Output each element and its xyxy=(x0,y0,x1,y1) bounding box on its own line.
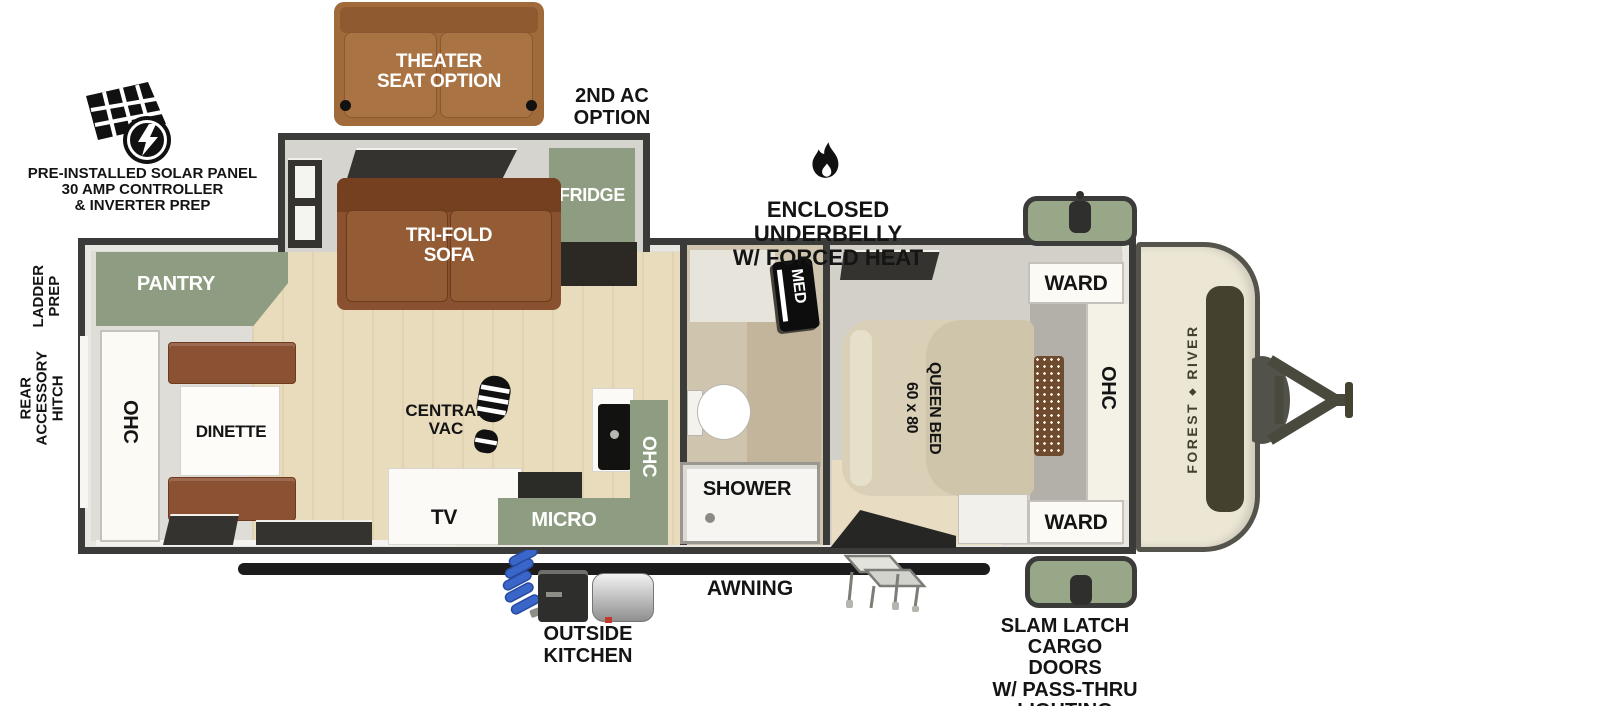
theater-seat-back xyxy=(340,7,538,33)
bath-counter xyxy=(747,322,821,467)
fridge: FRIDGE xyxy=(549,148,635,242)
bed-pillow xyxy=(850,330,872,486)
brand-logo: FOREST ◆ RIVER xyxy=(1184,284,1200,514)
solar-note-line2: 30 AMP CONTROLLER xyxy=(20,182,265,198)
tongue-hitch xyxy=(1252,348,1356,452)
med-highlight xyxy=(777,270,788,322)
cargo-door-bottom-handle xyxy=(1070,575,1092,605)
floorplan-canvas: PRE-INSTALLED SOLAR PANEL 30 AMP CONTROL… xyxy=(0,0,1600,706)
ladder-rail xyxy=(80,336,88,508)
toilet xyxy=(697,384,751,440)
grill-handle xyxy=(546,592,562,597)
rear-hitch-note: REAR ACCESSORY HITCH xyxy=(19,341,68,455)
brand-emblem-icon: ◆ xyxy=(1187,386,1197,395)
ward-top: WARD xyxy=(1028,262,1124,304)
solar-panel-icon xyxy=(72,78,184,172)
awning-label: AWNING xyxy=(690,578,810,601)
cargo-door-top xyxy=(1023,196,1137,246)
microwave-cabinet: MICRO xyxy=(498,498,630,545)
ward-top-label: WARD xyxy=(1030,273,1122,295)
theater-seat-label: THEATER SEAT OPTION xyxy=(334,52,544,92)
bed-size-label: 60 x 80 QUEEN BED xyxy=(890,332,954,484)
outside-kitchen-grill xyxy=(538,570,588,622)
living-window-right xyxy=(256,520,372,545)
brand-word2: RIVER xyxy=(1184,324,1200,379)
ohc-kitchen-label: OHC xyxy=(638,436,658,477)
ward-bottom-label: WARD xyxy=(1030,512,1122,534)
ohc-rear-label: OHC xyxy=(119,400,140,444)
cargo-doors-note: SLAM LATCH CARGO DOORS W/ PASS-THRU LIGH… xyxy=(990,616,1140,706)
theater-cupholder-left xyxy=(340,100,351,111)
ohc-rear-cabinet: OHC xyxy=(100,330,160,542)
theater-cupholder-right xyxy=(526,100,537,111)
ohc-kitchen-cabinet: OHC xyxy=(630,400,668,545)
front-cap-window xyxy=(1206,286,1244,512)
kitchen-sink xyxy=(598,404,632,470)
pantry-label: PANTRY xyxy=(96,274,256,295)
pantry: PANTRY xyxy=(96,252,288,326)
brand-word1: FOREST xyxy=(1184,402,1200,474)
outside-kitchen-note: OUTSIDE KITCHEN xyxy=(528,624,648,667)
outside-kitchen-griddle xyxy=(592,573,654,622)
cargo-door-bottom xyxy=(1025,556,1137,608)
shower-drain xyxy=(705,513,715,523)
sofa-label: TRI-FOLD SOFA xyxy=(337,226,561,266)
shower-pan: SHOWER xyxy=(680,462,820,544)
wall-bath-bedroom xyxy=(823,245,830,545)
second-ac-note: 2ND AC OPTION xyxy=(562,86,662,129)
solar-note-line1: PRE-INSTALLED SOLAR PANEL xyxy=(20,166,265,182)
ohc-bedroom-label: OHC xyxy=(1097,366,1118,410)
underbelly-note: ENCLOSED UNDERBELLY W/ FORCED HEAT xyxy=(696,198,960,269)
cargo-door-top-nub xyxy=(1076,191,1084,199)
ladder-prep-note: LADDER PREP xyxy=(31,243,63,349)
solar-note-line3: & INVERTER PREP xyxy=(20,198,265,214)
faucet xyxy=(610,430,619,439)
dinette-bench-top xyxy=(168,342,296,384)
dinette-label: DINETTE xyxy=(175,423,287,441)
ohc-bedroom-cabinet: OHC xyxy=(1086,304,1128,500)
fridge-label: FRIDGE xyxy=(549,186,635,205)
theater-seat-option: THEATER SEAT OPTION xyxy=(334,2,544,126)
slide-side-window xyxy=(288,158,322,248)
med-label: MED xyxy=(787,268,808,304)
micro-label: MICRO xyxy=(498,510,630,531)
dinette-table: DINETTE xyxy=(180,386,280,476)
slide-window xyxy=(346,148,518,182)
ward-bottom: WARD xyxy=(1028,500,1124,544)
tv-label: TV xyxy=(419,507,469,529)
cooktop xyxy=(518,472,582,500)
entry-steps xyxy=(838,550,948,612)
shower-label: SHOWER xyxy=(683,479,811,500)
headboard xyxy=(1034,356,1064,456)
living-window-left xyxy=(163,514,239,545)
queen-bed: 60 x 80 QUEEN BED xyxy=(842,320,1034,496)
window-pane xyxy=(295,206,315,240)
bedside-cabinet xyxy=(958,494,1028,544)
solar-note: PRE-INSTALLED SOLAR PANEL 30 AMP CONTROL… xyxy=(20,166,265,215)
window-pane xyxy=(295,166,315,198)
cargo-door-top-handle xyxy=(1069,201,1091,233)
flame-icon xyxy=(808,140,846,198)
tri-fold-sofa: TRI-FOLD SOFA xyxy=(337,178,561,310)
sofa-back xyxy=(337,178,561,212)
